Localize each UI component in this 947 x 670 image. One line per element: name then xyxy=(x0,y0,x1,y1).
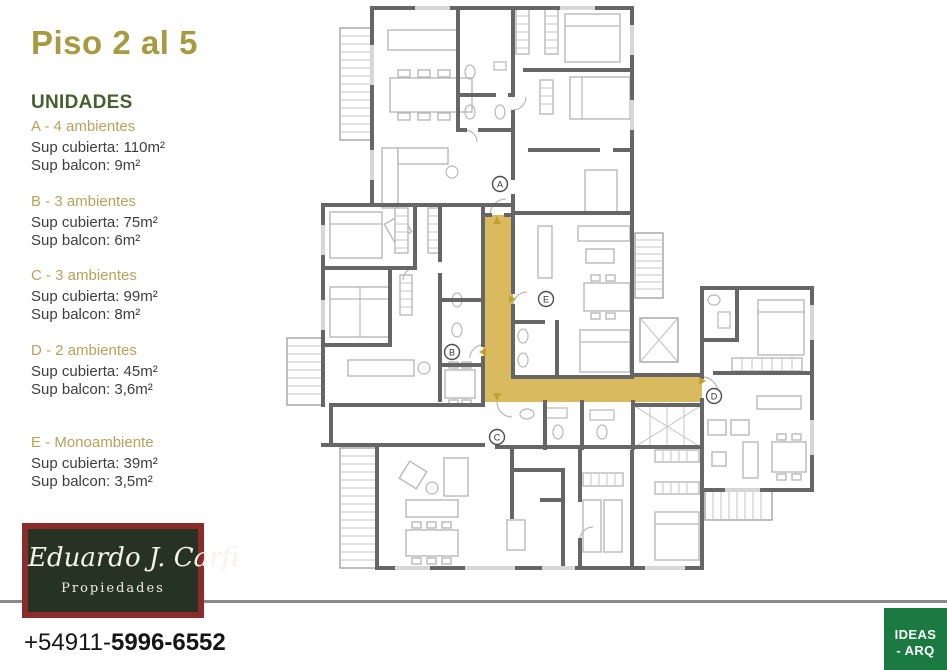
unit-d-label: D - 2 ambientes xyxy=(31,342,158,361)
phone-main: 5996-6552 xyxy=(111,629,226,656)
studio-badge-line1: IDEAS xyxy=(884,627,947,643)
unit-d-covered-area: Sup cubierta: 45m² xyxy=(31,363,158,382)
unit-marker-e: E xyxy=(539,292,554,307)
phone-prefix: +54911- xyxy=(24,629,111,656)
units-heading: UNIDADES xyxy=(31,92,133,114)
studio-badge: IDEAS - ARQ xyxy=(884,608,947,670)
unit-info-d: D - 2 ambientes Sup cubierta: 45m² Sup b… xyxy=(31,342,158,400)
svg-text:D: D xyxy=(711,392,718,402)
unit-marker-d: D xyxy=(707,389,722,404)
stairwell xyxy=(633,233,702,448)
agency-logo: Eduardo J. Carfi Propiedades xyxy=(22,523,204,618)
unit-a-balcony-area: Sup balcon: 9m² xyxy=(31,157,165,176)
unit-b-covered-area: Sup cubierta: 75m² xyxy=(31,214,158,233)
unit-d-balcony-area: Sup balcon: 3,6m² xyxy=(31,381,158,400)
unit-c-covered-area: Sup cubierta: 99m² xyxy=(31,288,158,307)
agency-subtitle: Propiedades xyxy=(28,581,198,596)
unit-marker-a: A xyxy=(493,177,508,192)
svg-text:C: C xyxy=(494,433,501,443)
unit-b-balcony-area: Sup balcon: 6m² xyxy=(31,232,158,251)
unit-a-label: A - 4 ambientes xyxy=(31,118,165,137)
unit-c-balcony-area: Sup balcon: 8m² xyxy=(31,306,158,325)
unit-info-a: A - 4 ambientes Sup cubierta: 110m² Sup … xyxy=(31,118,165,176)
flyer-page: A B C D E Piso 2 al 5 UNIDADES A - 4 amb… xyxy=(0,0,947,670)
unit-e-label: E - Monoambiente xyxy=(31,434,158,453)
svg-text:B: B xyxy=(449,348,455,358)
unit-info-e: E - Monoambiente Sup cubierta: 39m² Sup … xyxy=(31,434,158,492)
unit-e-covered-area: Sup cubierta: 39m² xyxy=(31,455,158,474)
unit-b-label: B - 3 ambientes xyxy=(31,193,158,212)
svg-text:E: E xyxy=(543,295,549,305)
page-title: Piso 2 al 5 xyxy=(31,24,198,62)
unit-info-c: C - 3 ambientes Sup cubierta: 99m² Sup b… xyxy=(31,267,158,325)
unit-marker-b: B xyxy=(445,345,460,360)
svg-text:A: A xyxy=(497,180,503,190)
unit-info-b: B - 3 ambientes Sup cubierta: 75m² Sup b… xyxy=(31,193,158,251)
unit-marker-c: C xyxy=(490,430,505,445)
unit-a-covered-area: Sup cubierta: 110m² xyxy=(31,139,165,158)
unit-e-balcony-area: Sup balcon: 3,5m² xyxy=(31,473,158,492)
phone-number: +54911-5996-6552 xyxy=(24,629,226,657)
unit-c-label: C - 3 ambientes xyxy=(31,267,158,286)
agency-name: Eduardo J. Carfi xyxy=(28,543,198,573)
studio-badge-line2: - ARQ xyxy=(884,643,947,659)
